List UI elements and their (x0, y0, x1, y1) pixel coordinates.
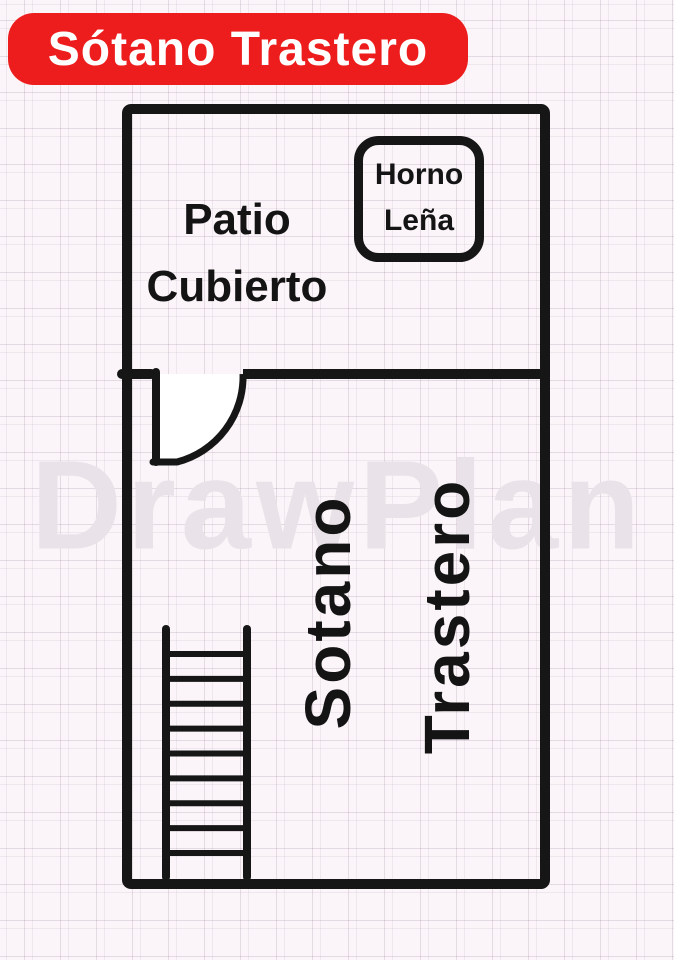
sotano-room-label-word1: Sotano (291, 495, 365, 730)
horno-label-line1: Horno (356, 152, 482, 198)
horno-lena-label: Horno Leña (356, 152, 482, 244)
sotano-room-label-word2: Trastero (410, 478, 484, 755)
page-title: Sótano Trastero (48, 22, 428, 77)
patio-label-line1: Patio (112, 186, 362, 253)
title-banner: Sótano Trastero (8, 13, 468, 85)
ladder-rungs (166, 654, 247, 853)
horno-label-line2: Leña (356, 198, 482, 244)
patio-cubierto-label: Patio Cubierto (112, 186, 362, 320)
stairs-ladder (166, 629, 247, 877)
patio-label-line2: Cubierto (112, 253, 362, 320)
floor-plan (0, 0, 674, 960)
page: { "page": { "background": "#fbf5f9", "gr… (0, 0, 674, 960)
